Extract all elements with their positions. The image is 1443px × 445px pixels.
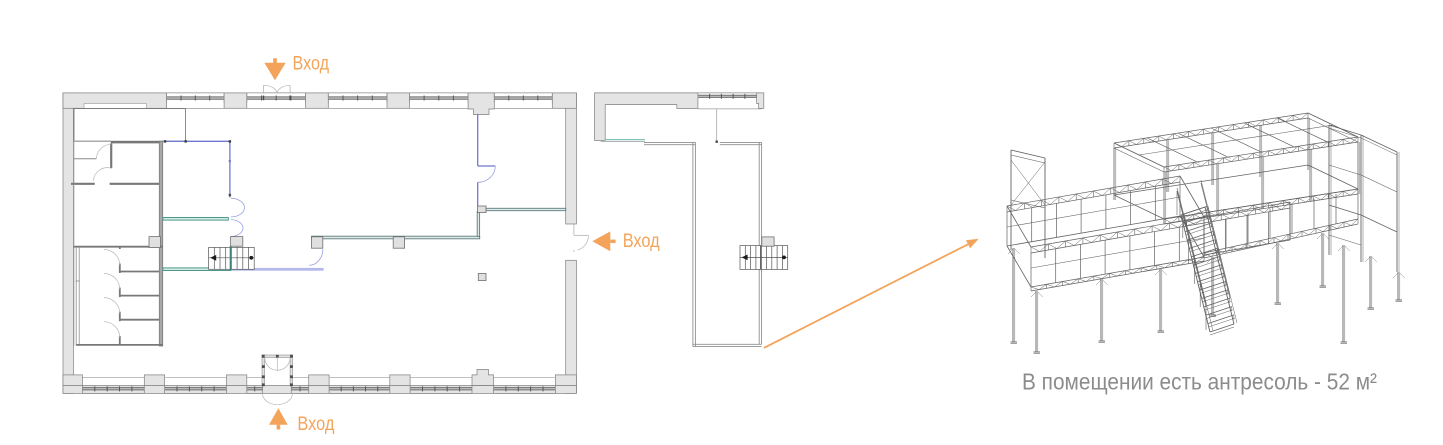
- svg-text:Вход: Вход: [297, 414, 334, 435]
- svg-text:В помещении есть антресоль - 5: В помещении есть антресоль - 52 м²: [1022, 369, 1377, 395]
- svg-text:Вход: Вход: [623, 231, 660, 252]
- svg-text:Вход: Вход: [293, 54, 330, 75]
